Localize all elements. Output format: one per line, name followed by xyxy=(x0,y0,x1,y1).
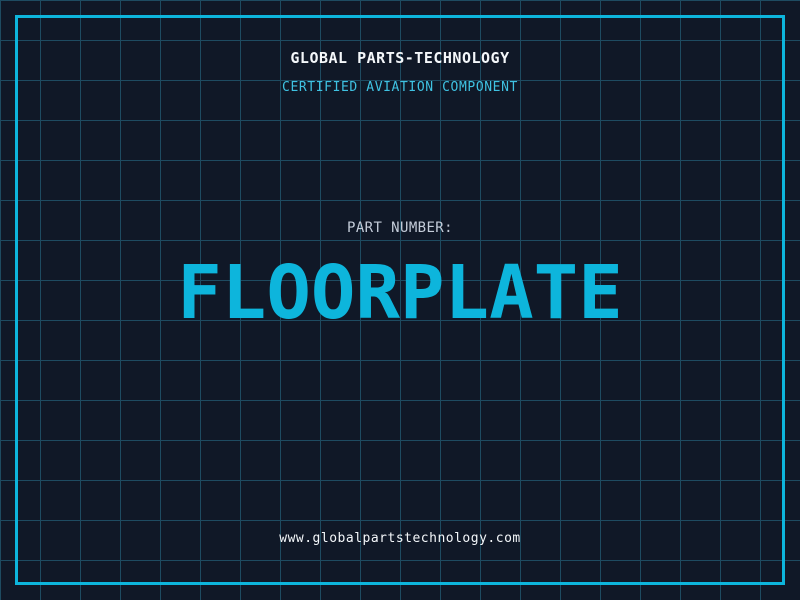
part-number-label: PART NUMBER: xyxy=(0,220,800,236)
blueprint-canvas: GLOBAL PARTS-TECHNOLOGY CERTIFIED AVIATI… xyxy=(0,0,800,600)
certification-tagline: CERTIFIED AVIATION COMPONENT xyxy=(0,80,800,95)
part-number-value: FLOORPLATE xyxy=(0,256,800,330)
company-name: GLOBAL PARTS-TECHNOLOGY xyxy=(0,49,800,67)
website-url: www.globalpartstechnology.com xyxy=(0,531,800,546)
